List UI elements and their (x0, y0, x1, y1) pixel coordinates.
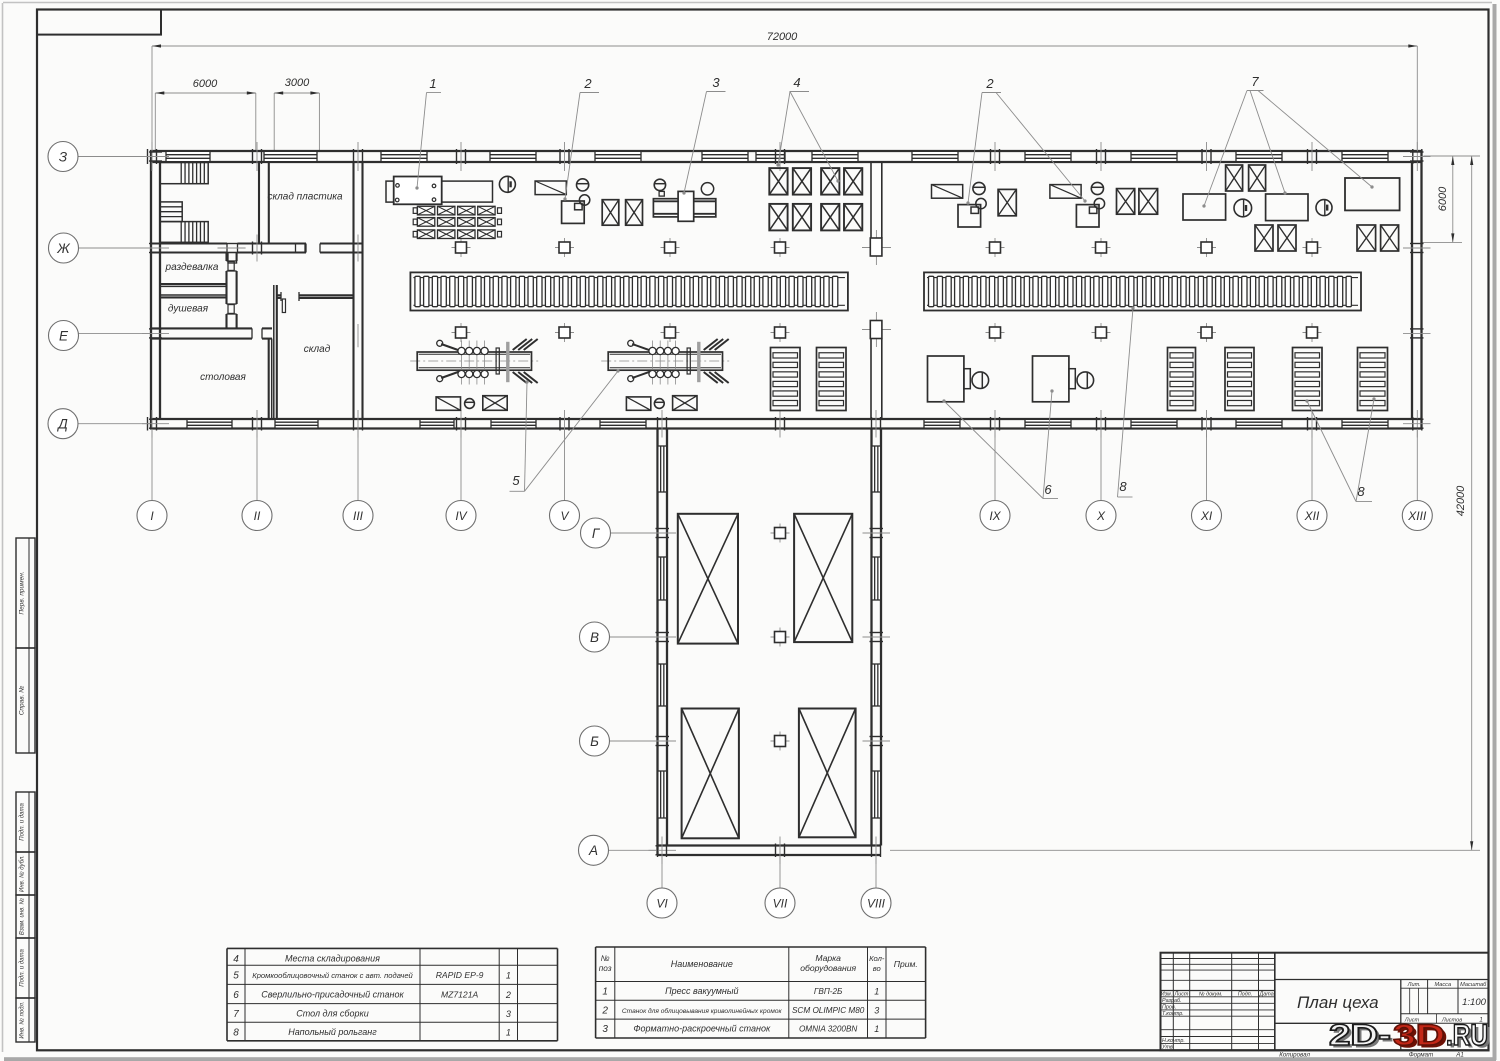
svg-text:3D: 3D (1393, 1019, 1445, 1052)
svg-text:7: 7 (233, 1009, 239, 1020)
svg-text:Подп. и дата: Подп. и дата (20, 803, 26, 841)
svg-text:6: 6 (233, 990, 239, 1001)
svg-text:6000: 6000 (1437, 186, 1449, 211)
svg-text:Копировал: Копировал (1279, 1051, 1310, 1058)
svg-text:72000: 72000 (767, 31, 798, 43)
svg-text:VII: VII (773, 896, 788, 910)
svg-text:склад пластика: склад пластика (267, 192, 343, 203)
svg-text:Справ. №: Справ. № (19, 686, 26, 716)
svg-text:II: II (254, 509, 261, 523)
svg-text:склад: склад (304, 344, 331, 355)
svg-text:1: 1 (506, 1028, 511, 1038)
svg-text:Д: Д (56, 417, 68, 432)
svg-text:SCM OLIMPIC M80: SCM OLIMPIC M80 (792, 1006, 865, 1015)
svg-text:1: 1 (874, 987, 879, 997)
svg-text:3000: 3000 (285, 77, 310, 89)
svg-text:№: № (601, 954, 610, 963)
svg-text:X: X (1096, 509, 1106, 523)
svg-text:душевая: душевая (168, 304, 209, 315)
svg-text:III: III (353, 509, 364, 523)
svg-text:4: 4 (793, 75, 800, 90)
svg-text:Изм.: Изм. (1161, 991, 1173, 997)
svg-text:3: 3 (506, 1009, 511, 1019)
svg-text:поз: поз (599, 964, 612, 973)
svg-text:1: 1 (506, 971, 511, 981)
svg-text:во: во (873, 964, 881, 973)
svg-text:Наименование: Наименование (671, 959, 733, 969)
svg-text:IV: IV (455, 509, 467, 523)
svg-text:№ докум.: № докум. (1199, 991, 1223, 997)
svg-text:План цеха: План цеха (1297, 993, 1379, 1012)
svg-text:6000: 6000 (193, 78, 218, 90)
svg-text:2: 2 (601, 1005, 608, 1016)
svg-text:XIII: XIII (1407, 509, 1427, 523)
svg-text:ГВП-2Б: ГВП-2Б (814, 987, 843, 996)
svg-text:Масса: Масса (1435, 982, 1452, 988)
svg-text:Станок для облицовывания криво: Станок для облицовывания криволинейных к… (622, 1007, 783, 1015)
svg-text:2: 2 (583, 76, 592, 91)
svg-text:З: З (59, 149, 68, 164)
svg-text:Инв. № подл.: Инв. № подл. (19, 1001, 26, 1038)
svg-text:Пров.: Пров. (1162, 1004, 1176, 1010)
svg-text:Кромкооблицовочный станок с ав: Кромкооблицовочный станок с авт. подачей (252, 971, 413, 980)
svg-text:7: 7 (1251, 74, 1259, 89)
svg-text:Масштаб: Масштаб (1460, 982, 1487, 988)
svg-text:1: 1 (602, 987, 608, 998)
svg-text:В: В (590, 630, 599, 645)
svg-text:Места складирования: Места складирования (285, 953, 380, 963)
svg-text:Е: Е (59, 328, 69, 343)
svg-text:6: 6 (1044, 482, 1052, 497)
svg-text:Взам. инв. №: Взам. инв. № (19, 897, 26, 935)
svg-text:Т.контр.: Т.контр. (1162, 1011, 1184, 1017)
svg-text:А: А (588, 843, 598, 858)
svg-text:Утв.: Утв. (1161, 1045, 1174, 1051)
svg-text:1: 1 (429, 76, 436, 91)
svg-text:2: 2 (985, 76, 994, 91)
svg-text:Лист: Лист (1174, 991, 1189, 997)
svg-text:4: 4 (233, 954, 239, 965)
svg-text:Кол-: Кол- (869, 954, 885, 963)
svg-text:Б: Б (590, 734, 599, 749)
svg-text:3: 3 (712, 75, 720, 90)
svg-text:1:100: 1:100 (1462, 997, 1486, 1008)
svg-text:8: 8 (233, 1028, 239, 1039)
svg-text:MZ7121A: MZ7121A (441, 989, 479, 999)
svg-text:Марка: Марка (815, 953, 841, 963)
svg-text:Прим.: Прим. (894, 959, 918, 969)
svg-text:VI: VI (656, 896, 668, 910)
svg-text:OMNIA 3200BN: OMNIA 3200BN (799, 1025, 857, 1034)
svg-text:XII: XII (1304, 509, 1320, 523)
svg-text:RAPID EP-9: RAPID EP-9 (436, 970, 484, 980)
svg-text:3: 3 (602, 1024, 608, 1035)
svg-text:Стол для сборки: Стол для сборки (296, 1009, 368, 1019)
svg-text:Лит.: Лит. (1407, 982, 1421, 988)
svg-text:раздевалка: раздевалка (165, 262, 219, 273)
svg-text:Н.контр.: Н.контр. (1162, 1038, 1185, 1044)
svg-text:2: 2 (505, 990, 511, 1000)
svg-text:Разраб.: Разраб. (1162, 998, 1182, 1004)
svg-text:Подп. и дата: Подп. и дата (20, 949, 26, 987)
svg-text:Подп.: Подп. (1238, 991, 1252, 997)
svg-text:Дата: Дата (1258, 991, 1273, 997)
svg-text:5: 5 (512, 473, 520, 488)
svg-text:IX: IX (989, 509, 1001, 523)
svg-text:Сверлильно-присадочный станок: Сверлильно-присадочный станок (261, 989, 404, 999)
svg-text:2D-: 2D- (1329, 1019, 1391, 1052)
svg-text:42000: 42000 (1455, 485, 1467, 516)
svg-text:8: 8 (1119, 479, 1127, 494)
svg-text:5: 5 (233, 971, 239, 982)
svg-text:XI: XI (1200, 509, 1213, 523)
svg-text:V: V (560, 509, 569, 523)
svg-text:оборудования: оборудования (800, 963, 856, 973)
svg-text:столовая: столовая (200, 372, 246, 383)
svg-text:Инв. № дубл.: Инв. № дубл. (19, 855, 26, 892)
svg-text:Напольный рольганг: Напольный рольганг (288, 1027, 377, 1037)
svg-text:VIII: VIII (867, 896, 886, 910)
svg-text:3: 3 (874, 1005, 879, 1015)
svg-text:Пресс вакуумный: Пресс вакуумный (665, 986, 738, 996)
svg-text:1: 1 (874, 1024, 879, 1034)
svg-text:Ж: Ж (56, 241, 71, 256)
svg-text:.RU: .RU (1446, 1019, 1488, 1052)
svg-text:Перв. примен.: Перв. примен. (19, 571, 26, 614)
svg-text:Форматно-раскроечный станок: Форматно-раскроечный станок (633, 1024, 771, 1034)
